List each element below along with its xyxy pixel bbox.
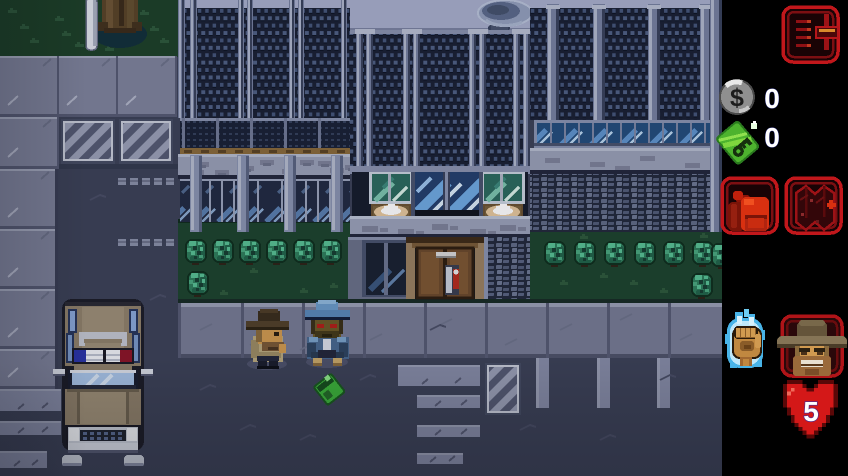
svg-text:0: 0: [764, 83, 780, 114]
svg-text:$: $: [730, 84, 744, 112]
svg-text:5: 5: [803, 396, 819, 427]
svg-text:0: 0: [764, 122, 780, 153]
